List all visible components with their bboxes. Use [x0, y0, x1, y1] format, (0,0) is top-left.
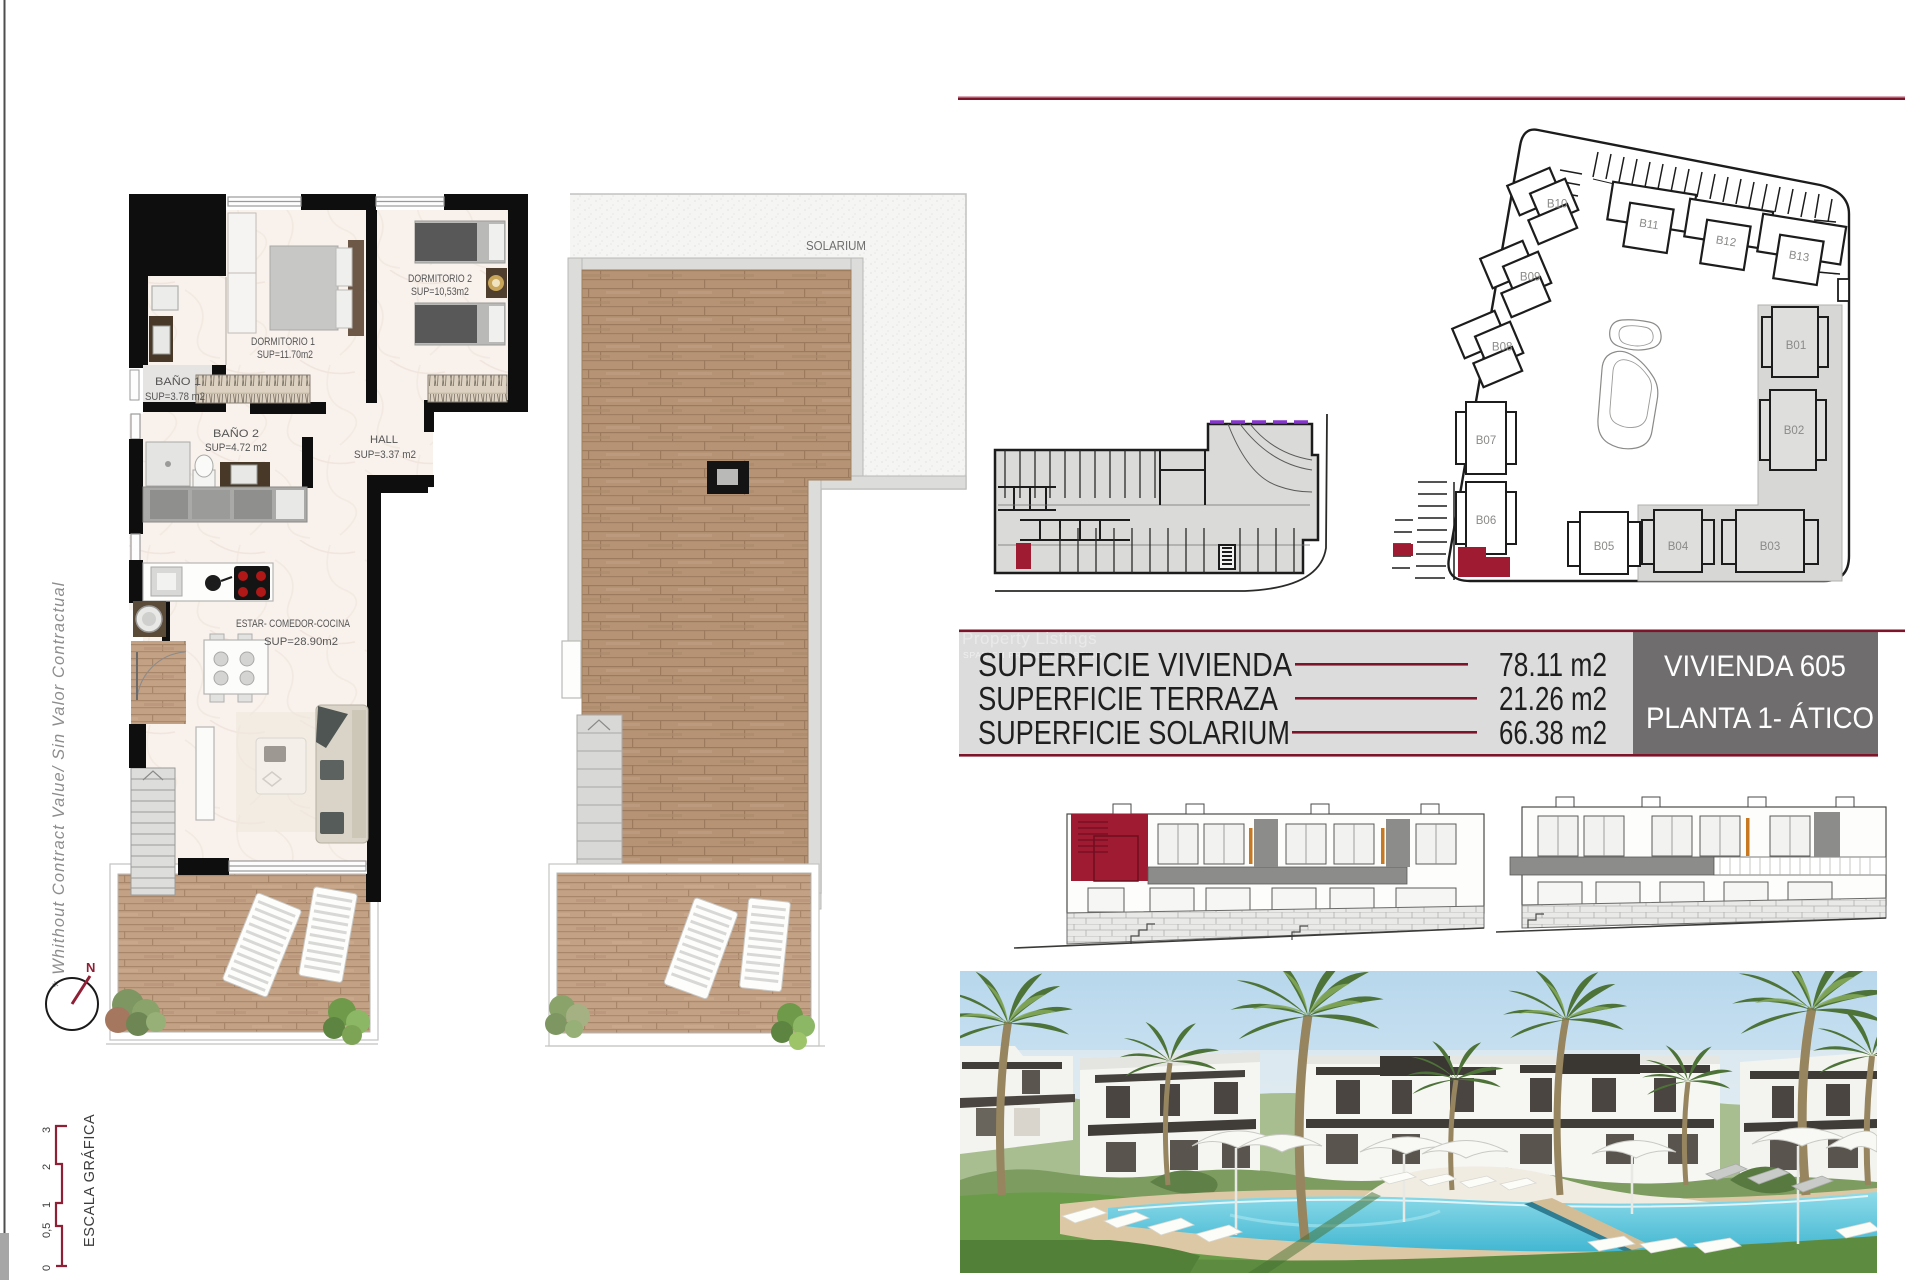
svg-text:B03: B03 — [1760, 541, 1780, 553]
svg-text:3: 3 — [41, 1127, 53, 1133]
svg-text:1: 1 — [41, 1202, 53, 1208]
svg-text:2: 2 — [41, 1164, 53, 1170]
svg-text:BAÑO 1: BAÑO 1 — [155, 375, 201, 388]
svg-text:0,5: 0,5 — [41, 1223, 53, 1238]
svg-text:21.26 m2: 21.26 m2 — [1499, 680, 1607, 717]
svg-text:VIVIENDA 605: VIVIENDA 605 — [1664, 650, 1846, 683]
svg-text:B09: B09 — [1520, 272, 1540, 284]
svg-text:ESTAR- COMEDOR-COCINA: ESTAR- COMEDOR-COCINA — [236, 618, 351, 630]
svg-text:SUPERFICIE SOLARIUM: SUPERFICIE SOLARIUM — [978, 714, 1290, 751]
svg-text:N: N — [86, 960, 95, 975]
svg-text:PLANTA 1- ÁTICO: PLANTA 1- ÁTICO — [1646, 702, 1874, 735]
svg-text:* Whithout Contract Value/ Sin: * Whithout Contract Value/ Sin Valor Con… — [50, 581, 68, 988]
svg-text:SUP=3.78 m2: SUP=3.78 m2 — [145, 391, 205, 403]
svg-text:B05: B05 — [1594, 541, 1614, 553]
svg-text:B06: B06 — [1476, 515, 1496, 527]
svg-text:SUP=11.70m2: SUP=11.70m2 — [257, 349, 313, 361]
svg-text:SUP=4.72 m2: SUP=4.72 m2 — [205, 442, 267, 454]
svg-text:SOLARIUM: SOLARIUM — [806, 239, 866, 253]
svg-text:SUP=28.90m2: SUP=28.90m2 — [264, 636, 338, 648]
svg-text:ESCALA GRÁFICA: ESCALA GRÁFICA — [81, 1114, 98, 1247]
svg-text:SUPERFICIE VIVIENDA: SUPERFICIE VIVIENDA — [978, 646, 1292, 683]
svg-text:B10: B10 — [1547, 199, 1567, 211]
svg-text:SUP=3.37 m2: SUP=3.37 m2 — [354, 449, 416, 461]
svg-text:DORMITORIO 1: DORMITORIO 1 — [251, 336, 315, 348]
svg-text:B01: B01 — [1786, 340, 1806, 352]
svg-text:BAÑO 2: BAÑO 2 — [213, 427, 259, 440]
svg-text:DORMITORIO 2: DORMITORIO 2 — [408, 273, 472, 285]
svg-text:B02: B02 — [1784, 425, 1804, 437]
svg-text:B08: B08 — [1492, 342, 1512, 354]
svg-text:HALL: HALL — [370, 434, 398, 446]
svg-text:66.38 m2: 66.38 m2 — [1499, 714, 1607, 751]
svg-text:SUPERFICIE TERRAZA: SUPERFICIE TERRAZA — [978, 680, 1278, 717]
svg-text:78.11 m2: 78.11 m2 — [1499, 646, 1607, 683]
svg-text:B07: B07 — [1476, 435, 1496, 447]
svg-text:B04: B04 — [1668, 541, 1689, 553]
svg-text:0: 0 — [41, 1265, 53, 1271]
svg-text:SUP=10,53m2: SUP=10,53m2 — [411, 286, 469, 298]
